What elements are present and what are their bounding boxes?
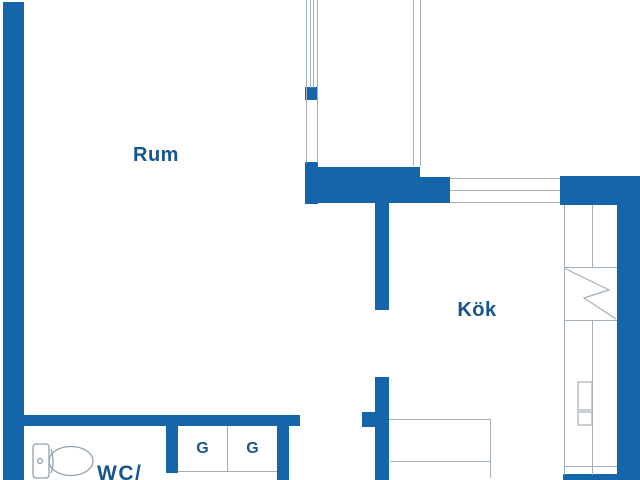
window-line xyxy=(306,0,307,163)
lightning-zigzag-icon xyxy=(563,267,617,320)
closet-label-right: G xyxy=(242,440,263,458)
room-label-rum: Rum xyxy=(126,144,186,166)
table-outline-right xyxy=(490,419,491,478)
wall-divider-lower xyxy=(375,377,389,480)
wall-bottom-right-strip xyxy=(563,474,640,480)
floorplan-canvas: Rum Kök G G WC/ xyxy=(0,0,640,480)
closet-label-left: G xyxy=(192,440,213,458)
wall-top-step xyxy=(420,177,450,203)
table-outline-top xyxy=(389,419,490,420)
window-line xyxy=(313,0,314,88)
wall-right xyxy=(617,205,640,480)
closet-front-line xyxy=(178,471,277,472)
window-line xyxy=(450,202,560,203)
railing-line xyxy=(420,0,421,166)
counter-divider-line xyxy=(592,205,593,267)
window-line xyxy=(310,0,311,88)
wall-closet-right-stub xyxy=(277,426,289,480)
wall-top-right xyxy=(560,176,640,205)
window-line xyxy=(317,0,318,163)
wall-divider-flange xyxy=(362,412,375,427)
window-line xyxy=(450,190,560,191)
counter-shelf-line xyxy=(564,466,617,467)
wall-wc-top xyxy=(24,415,300,426)
railing-line xyxy=(413,0,414,166)
room-label-kok: Kök xyxy=(447,299,507,321)
wall-divider-upper xyxy=(375,203,389,310)
window-line xyxy=(450,178,560,179)
wall-closet-left-stub xyxy=(166,426,178,473)
wall-left xyxy=(3,2,24,480)
table-outline-mid xyxy=(390,461,490,462)
sink-icon xyxy=(577,381,594,427)
toilet-icon xyxy=(30,441,96,480)
wall-top-main xyxy=(305,167,420,203)
counter-shelf-line xyxy=(564,320,617,321)
counter-front-line xyxy=(564,205,565,475)
room-label-wc: WC/ xyxy=(97,462,142,480)
closet-divider-line xyxy=(227,426,228,471)
